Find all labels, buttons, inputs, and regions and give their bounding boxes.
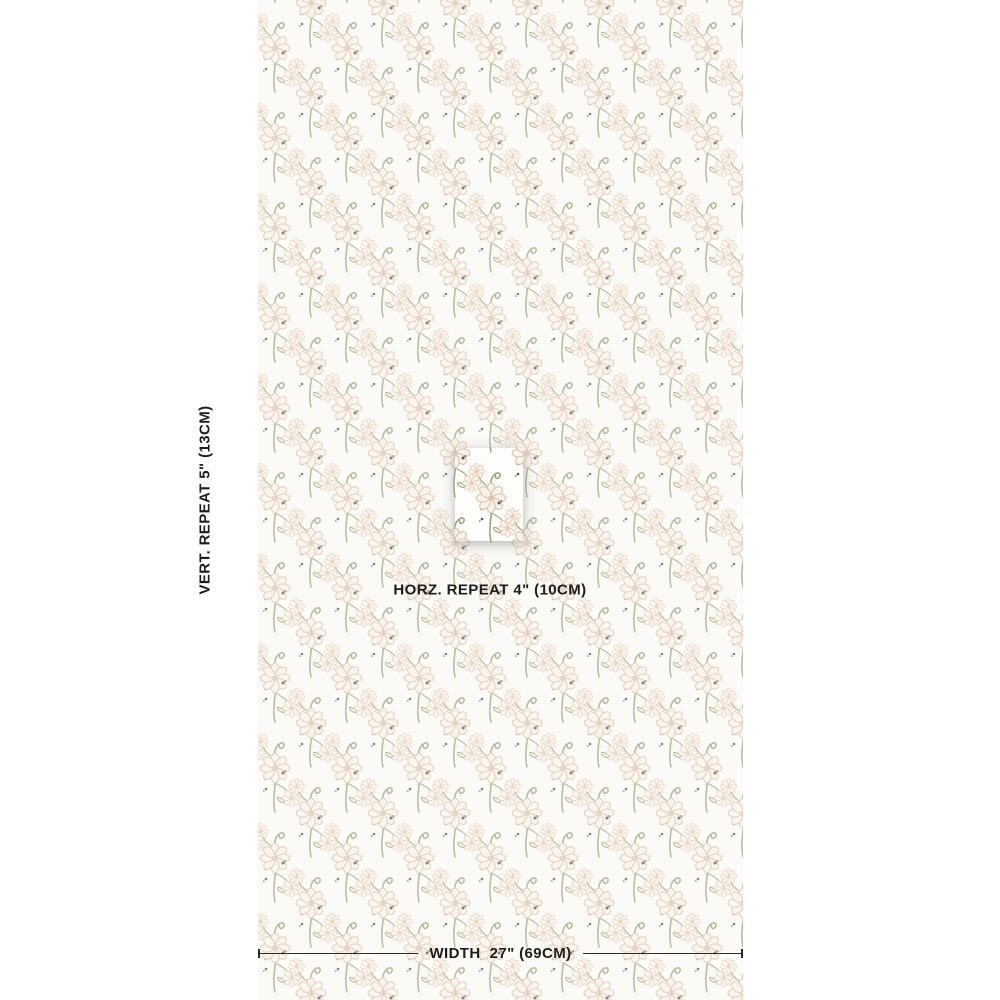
product-swatch-page: VERT. REPEAT 5" (13CM) [0,0,1000,1000]
width-label: WIDTH [429,945,480,962]
width-measure-tick-right [741,949,743,958]
fabric-swatch [258,0,743,1000]
vertical-repeat-label: VERT. REPEAT 5" (13CM) [197,406,214,595]
width-measure-line-left [260,953,418,954]
width-label-group: WIDTH 27" (69CM) [429,945,571,962]
pattern-repeat-tile [455,448,523,541]
floral-pattern-svg [258,0,743,1000]
horizontal-repeat-label: HORZ. REPEAT 4" (10CM) [393,582,586,599]
width-value: 27" (69CM) [490,945,572,962]
width-measure-line-right [583,953,741,954]
width-measure: WIDTH 27" (69CM) [258,946,743,961]
